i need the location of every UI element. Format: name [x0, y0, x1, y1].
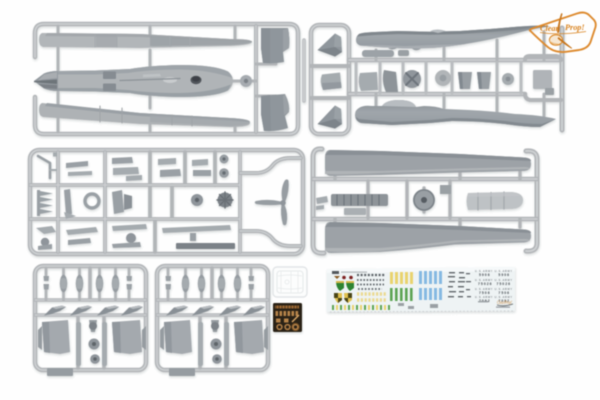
svg-text:5906 5906: 5906 5906 [479, 273, 509, 277]
svg-text:Prop!: Prop! [565, 23, 585, 32]
svg-text:Clear: Clear [540, 24, 559, 33]
svg-text:7506 7506: 7506 7506 [479, 291, 509, 295]
